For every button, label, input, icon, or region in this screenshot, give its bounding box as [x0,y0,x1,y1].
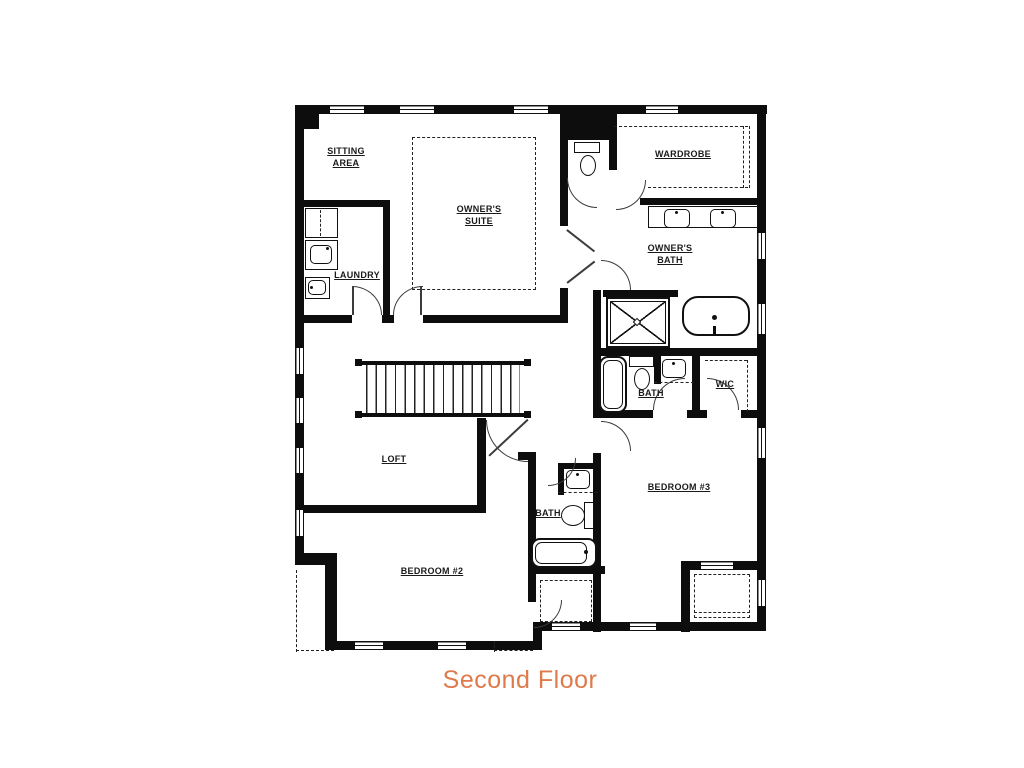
toilet-tank-icon [574,142,600,153]
stair-post [524,411,531,418]
laundry-faucet-icon [310,286,313,289]
room-label-bath2: BATH [535,508,561,520]
window [646,105,678,114]
window [295,348,304,374]
door-arc-wardrobe [616,180,646,210]
room-label-wardrobe: WARDROBE [655,149,711,161]
room-label-bedroom2: BEDROOM #2 [401,566,464,578]
window [514,105,548,114]
wic-shelf-dashed [705,360,747,361]
wall-bath1-niche-left [654,355,661,384]
faucet-icon [675,211,678,214]
wardrobe-shelf-dashed [743,126,744,188]
toilet-bowl-icon [634,368,650,390]
toilet-bowl-icon [580,155,596,176]
door-arc-suite-entry [393,286,423,315]
floor-plan-title: Second Floor [443,666,598,695]
wardrobe-shelf-dashed [614,126,748,127]
bath2-niche-dashed [558,492,598,493]
toilet-tank-icon [629,356,654,367]
wall-laundry-right [383,200,390,322]
room-label-sitting-area: SITTING AREA [327,146,365,169]
stair-post [355,411,362,418]
label-line: BEDROOM #3 [648,482,711,494]
washer-door-dashed [320,210,321,236]
wall-shower-top [603,290,678,297]
wall-loft-east [477,418,486,513]
door-arc-bedroom3 [601,421,631,451]
label-line: BATH [648,255,693,267]
room-label-owners-suite: OWNER'S SUITE [457,204,502,227]
wall-left [295,105,304,562]
room-label-wic: WIC [716,379,734,391]
wall-right [757,105,766,631]
wall-suite-south-c [423,315,568,323]
wall-suite-south-b [382,315,394,323]
window [295,398,304,423]
faucet-icon [576,473,579,476]
window [757,304,766,334]
door-arc-water-closet [567,178,597,208]
wall-jog-vertical [325,565,337,650]
optional-area-dashed [296,570,297,652]
door-leaf [420,286,422,315]
bedroom3-closet-shelf-dashed [694,612,750,613]
window [355,641,383,650]
wall-suite-east-stub [560,288,568,323]
wall-wardrobe-left [609,114,617,170]
toilet-bowl-icon [561,505,585,526]
bathtub-basin-icon [535,542,587,564]
room-label-loft: LOFT [382,454,407,466]
label-line: LAUNDRY [334,270,380,282]
bathtub-basin-icon [603,360,623,409]
label-line: BEDROOM #2 [401,566,464,578]
wall-closet-west-stub [528,574,536,602]
dryer-knob-icon [326,247,329,250]
closet-opening [701,561,733,570]
label-line: WARDROBE [655,149,711,161]
label-line: LOFT [382,454,407,466]
label-line: SUITE [457,216,502,228]
double-door-leaf [567,261,596,284]
tub-spout-icon [713,326,716,335]
room-label-laundry: LAUNDRY [334,270,380,282]
window [295,448,304,473]
window [438,641,466,650]
wall-loft-south [295,505,486,513]
wall-b3closet-west [681,561,690,632]
window [757,428,766,458]
optional-area-dashed [296,650,334,651]
label-line: BATH [638,388,664,400]
toilet-tank-icon [584,502,594,529]
window [400,105,434,114]
optional-area-dashed [494,650,533,651]
room-label-bedroom3: BEDROOM #3 [648,482,711,494]
wall-laundry-top [295,200,390,207]
double-door-leaf [567,229,596,252]
window [552,622,580,631]
wall-bath1-south-c [741,410,766,418]
window [330,105,364,114]
stair-post [524,359,531,366]
label-line: OWNER'S [457,204,502,216]
wardrobe-shelf-dashed [749,126,750,188]
faucet-icon [721,211,724,214]
window [757,580,766,606]
wardrobe-shelf-dashed [648,187,748,188]
window [757,233,766,259]
wall-bath1-wic-divider [692,355,700,417]
stair-treads [366,365,520,413]
door-leaf [352,286,354,315]
tub-drain-icon [712,315,717,320]
label-line: OWNER'S [648,243,693,255]
label-line: BATH [535,508,561,520]
tub-drain-icon [584,550,588,554]
label-line: AREA [327,158,365,170]
window [630,622,656,631]
room-label-bath1: BATH [638,388,664,400]
wall-vanity-top [640,198,766,205]
wall-suite-south-a [295,315,352,323]
label-line: WIC [716,379,734,391]
faucet-icon [672,362,675,365]
window [295,510,304,536]
floor-plan: SITTING AREA OWNER'S SUITE LAUNDRY WARDR… [0,0,1024,768]
stair-post [355,359,362,366]
wall-b3closet-top-b [733,561,766,570]
label-line: SITTING [327,146,365,158]
wic-shelf-dashed [747,360,748,412]
wall-jog-horizontal [295,553,337,565]
door-arc-laundry [352,286,382,315]
stair-rail-bottom [358,413,528,417]
room-label-owners-bath: OWNER'S BATH [648,243,693,266]
washer-icon [305,208,338,238]
door-arc-owners-bath [601,260,631,290]
wall-owners-bath-south [593,348,766,356]
